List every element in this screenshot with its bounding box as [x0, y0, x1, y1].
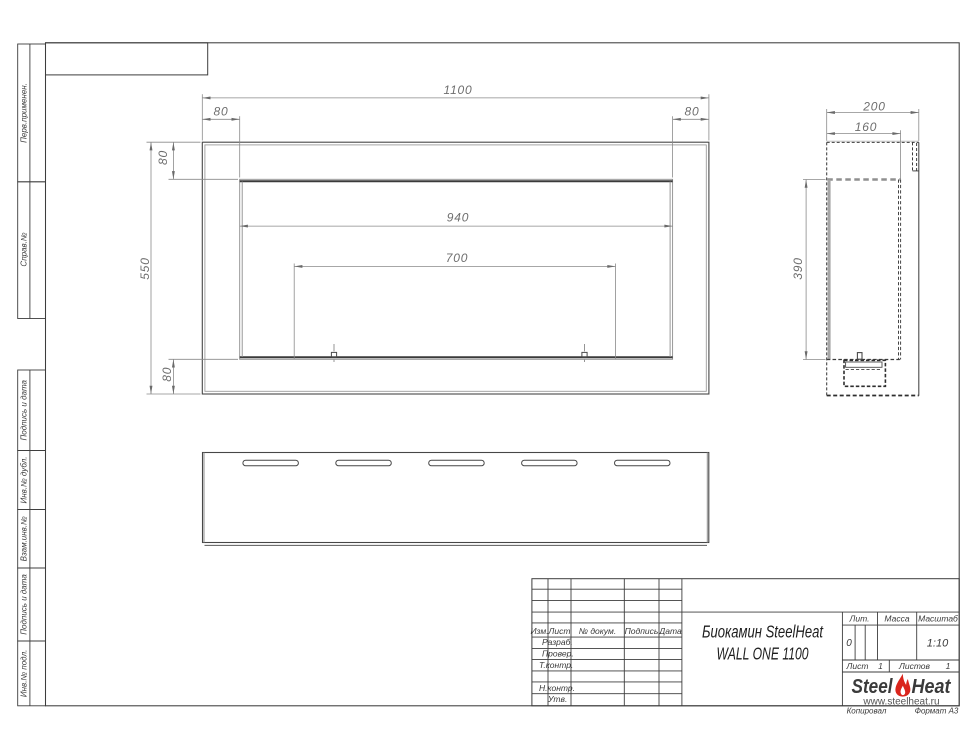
svg-text:390: 390 — [791, 257, 805, 279]
svg-text:1: 1 — [878, 661, 883, 671]
svg-text:Подпись: Подпись — [625, 626, 659, 636]
svg-text:Справ.№: Справ.№ — [20, 232, 29, 266]
svg-text:Листов: Листов — [898, 661, 931, 671]
svg-text:1: 1 — [946, 661, 951, 671]
svg-text:Перв.применен.: Перв.применен. — [20, 83, 29, 143]
svg-text:700: 700 — [446, 251, 468, 265]
svg-text:Взам.инв.№: Взам.инв.№ — [20, 516, 29, 561]
svg-text:160: 160 — [855, 120, 877, 134]
svg-text:550: 550 — [138, 257, 152, 279]
svg-text:Н.контр.: Н.контр. — [539, 683, 575, 693]
svg-text:WALL ONE 1100: WALL ONE 1100 — [717, 644, 809, 664]
svg-text:Инв.№ подл.: Инв.№ подл. — [20, 650, 29, 697]
svg-text:Формат А3: Формат А3 — [915, 707, 959, 716]
svg-text:Т.контр.: Т.контр. — [539, 660, 573, 670]
svg-text:1100: 1100 — [443, 83, 472, 97]
svg-text:Масса: Масса — [884, 614, 909, 624]
svg-text:Подпись и дата: Подпись и дата — [20, 379, 29, 440]
svg-text:Steel: Steel — [852, 676, 893, 698]
svg-text:Подпись и дата: Подпись и дата — [20, 574, 29, 635]
svg-text:Дата: Дата — [658, 626, 682, 636]
svg-text:80: 80 — [685, 105, 700, 119]
svg-text:940: 940 — [447, 211, 469, 225]
svg-text:Масштаб: Масштаб — [918, 614, 959, 624]
svg-text:№ докум.: № докум. — [579, 626, 616, 636]
svg-text:Биокамин SteelHeat: Биокамин SteelHeat — [702, 622, 824, 642]
svg-text:80: 80 — [160, 367, 174, 382]
svg-text:1:10: 1:10 — [927, 638, 949, 650]
svg-text:80: 80 — [156, 150, 170, 165]
svg-text:0: 0 — [846, 638, 852, 649]
svg-text:Провер.: Провер. — [542, 649, 574, 659]
svg-text:80: 80 — [214, 105, 229, 119]
svg-text:Копировал: Копировал — [847, 707, 887, 716]
svg-text:Лист: Лист — [548, 626, 571, 636]
svg-text:Изм.: Изм. — [530, 626, 548, 636]
svg-text:Лит.: Лит. — [849, 614, 870, 624]
svg-text:Разраб.: Разраб. — [542, 637, 573, 647]
svg-text:Инв.№ дубл.: Инв.№ дубл. — [20, 457, 29, 504]
svg-text:Лист: Лист — [846, 661, 869, 671]
svg-text:Утв.: Утв. — [547, 694, 567, 704]
svg-text:200: 200 — [862, 100, 885, 114]
svg-text:Heat: Heat — [912, 676, 952, 698]
